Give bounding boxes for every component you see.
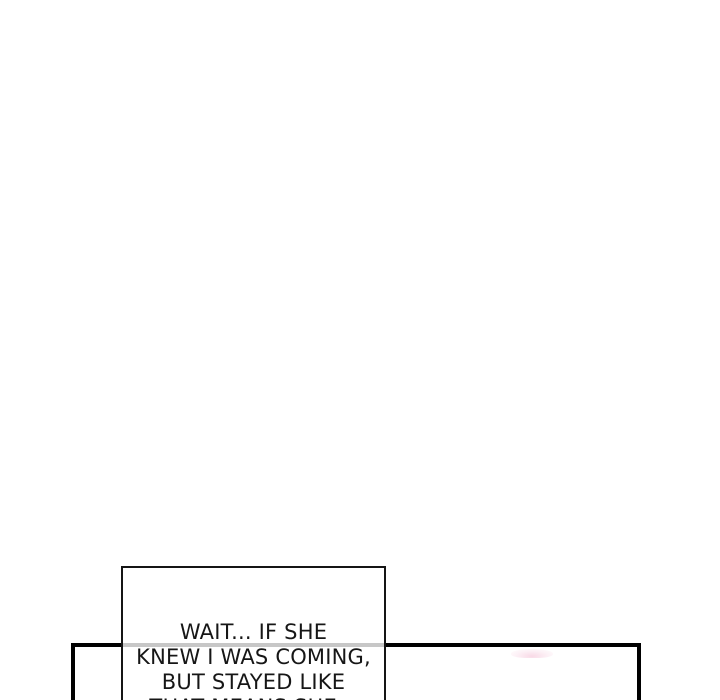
speech-bubble-line-4-cutoff: THAT MEANS SHE...: [123, 695, 384, 700]
webtoon-page: WAIT... IF SHE KNEW I WAS COMING, BUT ST…: [0, 0, 720, 700]
speech-bubble-line-2: KNEW I WAS COMING,: [123, 645, 384, 670]
speech-bubble-line-3: BUT STAYED LIKE: [123, 670, 384, 695]
character-head-top-smudge: [511, 649, 553, 658]
speech-bubble-line-1: WAIT... IF SHE: [123, 620, 384, 645]
speech-bubble: WAIT... IF SHE KNEW I WAS COMING, BUT ST…: [121, 566, 386, 700]
